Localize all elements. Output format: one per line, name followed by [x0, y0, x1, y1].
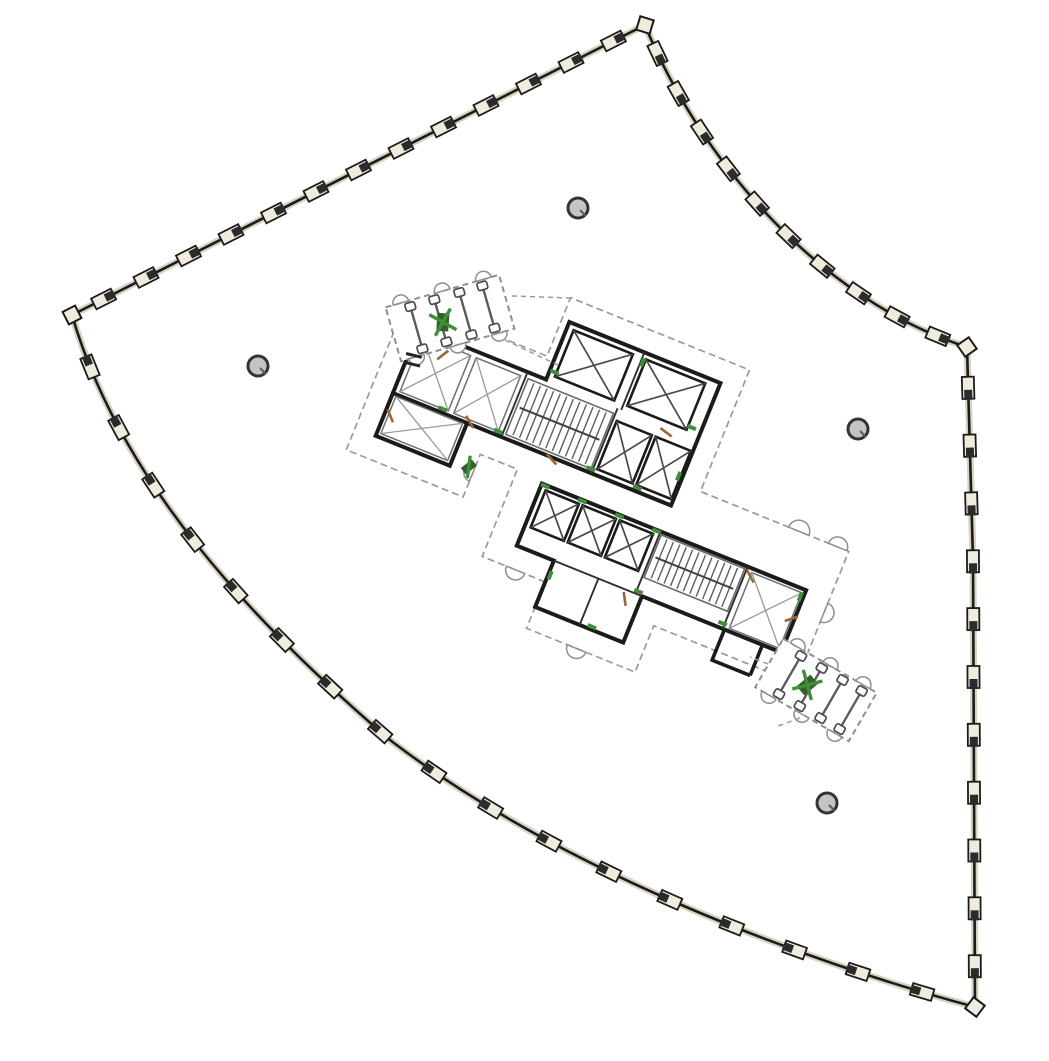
mullion — [909, 983, 934, 1001]
mullion — [346, 159, 372, 180]
door-swing-arc — [503, 566, 525, 583]
mullion-cap — [971, 910, 979, 920]
mullion — [962, 377, 975, 400]
mullion — [967, 550, 979, 573]
mullion — [968, 839, 980, 862]
curtain-wall-mullions — [63, 16, 985, 1017]
mullion-cap — [970, 679, 978, 689]
door-swing-scallop — [820, 603, 837, 625]
structural-column — [568, 198, 588, 218]
duct-cap — [441, 337, 453, 347]
mullion-cap — [964, 390, 972, 400]
mullion — [969, 955, 981, 978]
corner-block — [957, 337, 976, 356]
mullion-cap — [966, 447, 974, 457]
door-swing-arc — [820, 603, 837, 625]
mullion-cap — [967, 505, 975, 515]
corner-block — [965, 997, 985, 1017]
mullion — [431, 116, 457, 137]
mullion — [133, 267, 159, 288]
mullion-cap — [970, 795, 978, 805]
structural-column — [848, 419, 868, 439]
mullion — [969, 897, 981, 920]
door-swing-scallop — [828, 534, 850, 551]
mullion-cap — [971, 968, 979, 978]
clearance-connector — [778, 718, 800, 726]
duct-cap — [417, 344, 429, 354]
mullion — [967, 608, 979, 631]
mullion-cap — [969, 621, 977, 631]
mullion — [965, 492, 978, 515]
door-swing-scallop — [564, 645, 586, 662]
facade-northeast — [645, 25, 967, 347]
door-swing-arc — [564, 645, 586, 662]
outer-curtain-wall — [72, 25, 975, 1007]
floor-plan-canvas — [0, 0, 1049, 1061]
mullion — [176, 245, 202, 266]
core-vestibules — [383, 267, 880, 748]
mullion — [925, 327, 951, 347]
duct-cap — [404, 301, 416, 311]
structural-column — [248, 356, 268, 376]
mullion — [718, 916, 744, 936]
mullion — [781, 940, 807, 959]
mullion — [601, 30, 627, 51]
door-swing-arc — [828, 534, 850, 551]
facade-northeast-halo — [645, 25, 967, 347]
mullion-cap — [969, 563, 977, 573]
fixture-mark — [458, 456, 480, 478]
mullion — [303, 181, 329, 202]
floor-plan-page — [0, 0, 1049, 1061]
mullion-cap — [970, 852, 978, 862]
mullion — [218, 224, 244, 245]
duct-cap — [453, 287, 465, 297]
mullion — [558, 52, 584, 73]
facade-corner — [957, 337, 976, 356]
door-swing-arc — [789, 517, 814, 535]
mullion — [473, 95, 499, 116]
door-swing-scallop — [789, 517, 814, 535]
mullion — [968, 782, 980, 805]
mullion — [261, 202, 287, 223]
mullion-cap — [970, 737, 978, 747]
duct-cap — [476, 281, 488, 291]
structural-column — [817, 793, 837, 813]
mullion — [963, 434, 976, 457]
duct-cap — [489, 323, 501, 333]
mullion — [80, 354, 100, 380]
mullion — [647, 41, 668, 67]
facade-corner — [965, 997, 985, 1017]
plumbing-fixture — [458, 456, 480, 478]
clearance-connector — [512, 296, 571, 298]
mullion — [388, 138, 414, 159]
corner-block — [636, 16, 653, 33]
mullion — [516, 73, 542, 94]
mullion — [656, 890, 682, 910]
door-swing-scallop — [503, 566, 525, 583]
mullion — [845, 962, 871, 981]
facade-corner — [636, 16, 653, 33]
mullion — [595, 861, 621, 882]
duct-cap — [466, 330, 478, 340]
mullion — [91, 288, 117, 309]
mullion — [967, 666, 979, 689]
duct-cap — [428, 294, 440, 304]
mullion — [968, 724, 980, 747]
